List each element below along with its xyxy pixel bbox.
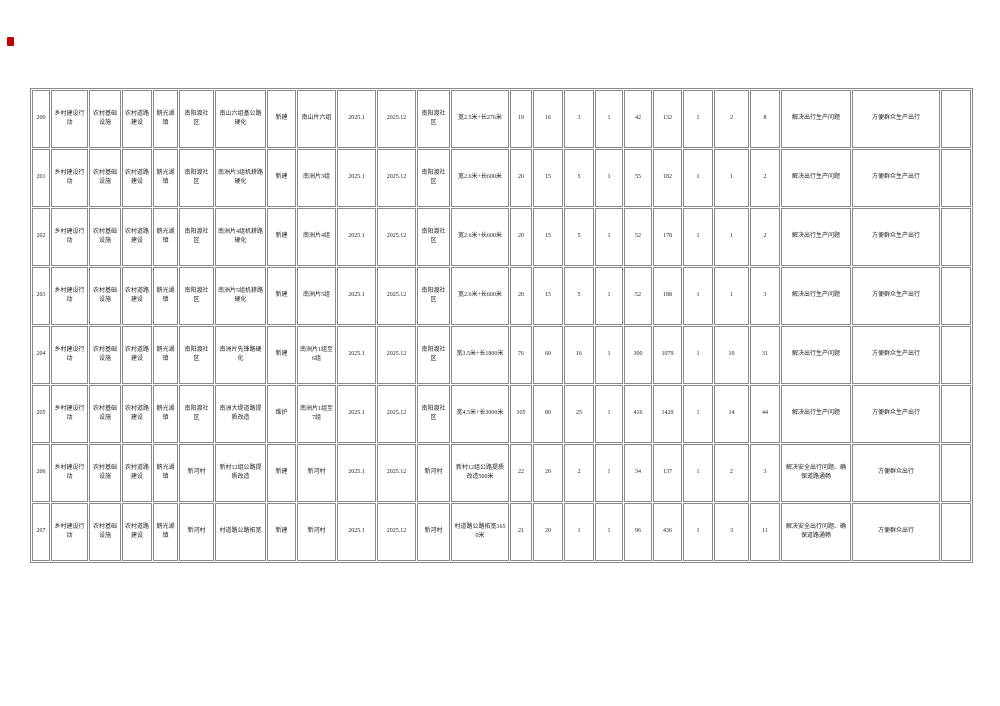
cell-scale: 新村12组公路提质改造500米 bbox=[451, 444, 509, 502]
cell-num-2: 15 bbox=[533, 267, 563, 325]
cell-action: 乡村建设行动 bbox=[51, 149, 88, 207]
cell-action: 乡村建设行动 bbox=[51, 444, 88, 502]
cell-purpose: 解决出行生产问题 bbox=[781, 208, 851, 266]
cell-unit: 南阳渡社区 bbox=[417, 149, 450, 207]
cell-end-date: 2025.12 bbox=[377, 444, 416, 502]
cell-num-3: 2 bbox=[564, 444, 594, 502]
cell-category: 农村基础设施 bbox=[89, 326, 121, 384]
cell-num-3: 3 bbox=[564, 90, 594, 148]
cell-unit: 南阳渡社区 bbox=[417, 208, 450, 266]
cell-blank bbox=[941, 444, 971, 502]
cell-end-date: 2025.12 bbox=[377, 208, 416, 266]
cell-num-9: 3 bbox=[750, 444, 780, 502]
cell-num-8: 1 bbox=[714, 208, 749, 266]
cell-unit: 南阳渡社区 bbox=[417, 385, 450, 443]
cell-index: 202 bbox=[32, 208, 50, 266]
cell-num-1: 20 bbox=[510, 267, 532, 325]
cell-purpose: 解决出行生产问题 bbox=[781, 90, 851, 148]
cell-effect: 方便群众生产出行 bbox=[852, 267, 940, 325]
cell-location: 新河村 bbox=[297, 444, 336, 502]
cell-num-5: 42 bbox=[624, 90, 652, 148]
cell-index: 206 bbox=[32, 444, 50, 502]
cell-num-1: 22 bbox=[510, 444, 532, 502]
cell-subcategory: 农村道路建设 bbox=[122, 208, 152, 266]
table-row: 203 乡村建设行动 农村基础设施 农村道路建设 鹅光湖镇 南阳渡社区 南洲片5… bbox=[32, 267, 971, 325]
cell-num-4: 1 bbox=[595, 326, 623, 384]
cell-purpose: 解决出行生产问题 bbox=[781, 326, 851, 384]
cell-num-3: 5 bbox=[564, 208, 594, 266]
cell-town: 鹅光湖镇 bbox=[153, 326, 178, 384]
cell-effect: 方便群众出行 bbox=[852, 444, 940, 502]
cell-start-date: 2025.1 bbox=[337, 208, 376, 266]
cell-project-name: 南洲片4组机耕路硬化 bbox=[215, 208, 266, 266]
cell-num-6: 132 bbox=[653, 90, 682, 148]
cell-index: 207 bbox=[32, 503, 50, 561]
cell-num-9: 11 bbox=[750, 503, 780, 561]
cell-num-6: 182 bbox=[653, 149, 682, 207]
cell-num-8: 1 bbox=[714, 267, 749, 325]
cell-town: 鹅光湖镇 bbox=[153, 385, 178, 443]
cell-num-2: 60 bbox=[533, 326, 563, 384]
cell-num-4: 1 bbox=[595, 149, 623, 207]
cell-subcategory: 农村道路建设 bbox=[122, 149, 152, 207]
cell-location: 南洲片3组 bbox=[297, 149, 336, 207]
cell-effect: 方便群众生产出行 bbox=[852, 326, 940, 384]
cell-num-5: 416 bbox=[624, 385, 652, 443]
table-row: 200 乡村建设行动 农村基础设施 农村道路建设 鹅光湖镇 南阳渡社区 南山六组… bbox=[32, 90, 971, 148]
cell-blank bbox=[941, 149, 971, 207]
cell-village: 南阳渡社区 bbox=[179, 267, 214, 325]
cell-num-4: 1 bbox=[595, 385, 623, 443]
table-row: 206 乡村建设行动 农村基础设施 农村道路建设 鹅光湖镇 新河村 新村12组公… bbox=[32, 444, 971, 502]
cell-num-6: 137 bbox=[653, 444, 682, 502]
cell-num-2: 16 bbox=[533, 90, 563, 148]
cell-num-5: 300 bbox=[624, 326, 652, 384]
cell-build-type: 新建 bbox=[267, 267, 296, 325]
cell-purpose: 解决出行生产问题 bbox=[781, 267, 851, 325]
cell-village: 南阳渡社区 bbox=[179, 385, 214, 443]
cell-blank bbox=[941, 208, 971, 266]
cell-build-type: 新建 bbox=[267, 149, 296, 207]
cell-num-1: 76 bbox=[510, 326, 532, 384]
cell-end-date: 2025.12 bbox=[377, 503, 416, 561]
cell-start-date: 2025.1 bbox=[337, 385, 376, 443]
cell-build-type: 新建 bbox=[267, 503, 296, 561]
cell-num-3: 5 bbox=[564, 149, 594, 207]
cell-index: 200 bbox=[32, 90, 50, 148]
cell-num-7: 1 bbox=[683, 90, 713, 148]
cell-project-name: 南山六组基公路硬化 bbox=[215, 90, 266, 148]
cell-num-8: 2 bbox=[714, 444, 749, 502]
cell-num-4: 1 bbox=[595, 267, 623, 325]
cell-num-1: 20 bbox=[510, 149, 532, 207]
cell-scale: 宽2.6米+长600米 bbox=[451, 208, 509, 266]
cell-num-7: 1 bbox=[683, 444, 713, 502]
cell-category: 农村基础设施 bbox=[89, 503, 121, 561]
cell-build-type: 新建 bbox=[267, 90, 296, 148]
cell-village: 新河村 bbox=[179, 503, 214, 561]
cell-start-date: 2025.1 bbox=[337, 503, 376, 561]
cell-project-name: 新村12组公路提质改造 bbox=[215, 444, 266, 502]
cell-action: 乡村建设行动 bbox=[51, 90, 88, 148]
cell-location: 新河村 bbox=[297, 503, 336, 561]
cell-location: 南洲片1组至7组 bbox=[297, 385, 336, 443]
cell-end-date: 2025.12 bbox=[377, 385, 416, 443]
cell-category: 农村基础设施 bbox=[89, 208, 121, 266]
cell-scale: 宽2.6米+长600米 bbox=[451, 267, 509, 325]
cell-town: 鹅光湖镇 bbox=[153, 503, 178, 561]
cell-end-date: 2025.12 bbox=[377, 149, 416, 207]
cell-num-9: 31 bbox=[750, 326, 780, 384]
cell-start-date: 2025.1 bbox=[337, 326, 376, 384]
cell-unit: 南阳渡社区 bbox=[417, 326, 450, 384]
cell-num-5: 96 bbox=[624, 503, 652, 561]
cell-location: 南山片六组 bbox=[297, 90, 336, 148]
cell-location: 南洲片4组 bbox=[297, 208, 336, 266]
project-table: 200 乡村建设行动 农村基础设施 农村道路建设 鹅光湖镇 南阳渡社区 南山六组… bbox=[30, 88, 973, 563]
cell-effect: 方便群众生产出行 bbox=[852, 149, 940, 207]
cell-town: 鹅光湖镇 bbox=[153, 149, 178, 207]
cell-num-1: 20 bbox=[510, 208, 532, 266]
cell-town: 鹅光湖镇 bbox=[153, 267, 178, 325]
cell-start-date: 2025.1 bbox=[337, 149, 376, 207]
cell-blank bbox=[941, 267, 971, 325]
cell-action: 乡村建设行动 bbox=[51, 385, 88, 443]
cell-purpose: 解决出行生产问题 bbox=[781, 149, 851, 207]
cell-num-3: 1 bbox=[564, 503, 594, 561]
cell-num-4: 1 bbox=[595, 90, 623, 148]
cell-subcategory: 农村道路建设 bbox=[122, 503, 152, 561]
cell-num-2: 80 bbox=[533, 385, 563, 443]
cell-end-date: 2025.12 bbox=[377, 90, 416, 148]
cell-town: 鹅光湖镇 bbox=[153, 444, 178, 502]
cell-build-type: 新建 bbox=[267, 326, 296, 384]
cell-build-type: 新建 bbox=[267, 444, 296, 502]
cell-index: 204 bbox=[32, 326, 50, 384]
cell-num-6: 436 bbox=[653, 503, 682, 561]
cell-num-2: 20 bbox=[533, 444, 563, 502]
cell-effect: 方便群众出行 bbox=[852, 503, 940, 561]
table-row: 204 乡村建设行动 农村基础设施 农村道路建设 鹅光湖镇 南阳渡社区 南洲片先… bbox=[32, 326, 971, 384]
cell-scale: 宽2.5米+长276米 bbox=[451, 90, 509, 148]
cell-project-name: 南洲片先锋路硬化 bbox=[215, 326, 266, 384]
cell-num-2: 15 bbox=[533, 149, 563, 207]
cell-num-5: 52 bbox=[624, 267, 652, 325]
cell-subcategory: 农村道路建设 bbox=[122, 444, 152, 502]
cell-subcategory: 农村道路建设 bbox=[122, 326, 152, 384]
cell-effect: 方便群众生产出行 bbox=[852, 208, 940, 266]
cell-num-6: 1079 bbox=[653, 326, 682, 384]
cell-effect: 方便群众生产出行 bbox=[852, 385, 940, 443]
cell-location: 南洲片1组至6组 bbox=[297, 326, 336, 384]
cell-unit: 南阳渡社区 bbox=[417, 90, 450, 148]
cell-subcategory: 农村道路建设 bbox=[122, 267, 152, 325]
cell-num-7: 1 bbox=[683, 503, 713, 561]
cell-num-7: 1 bbox=[683, 326, 713, 384]
cell-num-9: 2 bbox=[750, 208, 780, 266]
cell-scale: 村道路公路拓宽1650米 bbox=[451, 503, 509, 561]
annotation-mark-icon bbox=[7, 37, 14, 46]
cell-num-1: 105 bbox=[510, 385, 532, 443]
cell-num-5: 52 bbox=[624, 208, 652, 266]
cell-build-type: 新建 bbox=[267, 208, 296, 266]
cell-num-5: 34 bbox=[624, 444, 652, 502]
cell-num-6: 178 bbox=[653, 208, 682, 266]
cell-index: 201 bbox=[32, 149, 50, 207]
cell-subcategory: 农村道路建设 bbox=[122, 385, 152, 443]
cell-blank bbox=[941, 385, 971, 443]
cell-village: 新河村 bbox=[179, 444, 214, 502]
cell-index: 203 bbox=[32, 267, 50, 325]
cell-village: 南阳渡社区 bbox=[179, 208, 214, 266]
cell-village: 南阳渡社区 bbox=[179, 326, 214, 384]
cell-category: 农村基础设施 bbox=[89, 90, 121, 148]
cell-purpose: 解决安全出行问题、确保道路通畅 bbox=[781, 444, 851, 502]
cell-num-8: 1 bbox=[714, 149, 749, 207]
cell-action: 乡村建设行动 bbox=[51, 267, 88, 325]
cell-num-9: 8 bbox=[750, 90, 780, 148]
cell-num-7: 1 bbox=[683, 267, 713, 325]
cell-num-4: 1 bbox=[595, 503, 623, 561]
document-page: 200 乡村建设行动 农村基础设施 农村道路建设 鹅光湖镇 南阳渡社区 南山六组… bbox=[0, 0, 1000, 706]
cell-num-7: 1 bbox=[683, 208, 713, 266]
cell-unit: 南阳渡社区 bbox=[417, 267, 450, 325]
cell-start-date: 2025.1 bbox=[337, 444, 376, 502]
cell-unit: 新河村 bbox=[417, 503, 450, 561]
cell-scale: 宽2.6米+长600米 bbox=[451, 149, 509, 207]
cell-build-type: 维护 bbox=[267, 385, 296, 443]
cell-category: 农村基础设施 bbox=[89, 444, 121, 502]
cell-num-1: 21 bbox=[510, 503, 532, 561]
cell-num-8: 3 bbox=[714, 503, 749, 561]
cell-end-date: 2025.12 bbox=[377, 326, 416, 384]
cell-project-name: 南洲片5组机耕路硬化 bbox=[215, 267, 266, 325]
cell-num-6: 1420 bbox=[653, 385, 682, 443]
cell-subcategory: 农村道路建设 bbox=[122, 90, 152, 148]
table-body: 200 乡村建设行动 农村基础设施 农村道路建设 鹅光湖镇 南阳渡社区 南山六组… bbox=[32, 90, 971, 561]
cell-num-3: 25 bbox=[564, 385, 594, 443]
cell-num-1: 19 bbox=[510, 90, 532, 148]
cell-num-4: 1 bbox=[595, 444, 623, 502]
cell-start-date: 2025.1 bbox=[337, 267, 376, 325]
cell-project-name: 南洲大堤道路提质改造 bbox=[215, 385, 266, 443]
cell-blank bbox=[941, 503, 971, 561]
cell-num-7: 1 bbox=[683, 149, 713, 207]
cell-end-date: 2025.12 bbox=[377, 267, 416, 325]
cell-town: 鹅光湖镇 bbox=[153, 90, 178, 148]
cell-num-6: 188 bbox=[653, 267, 682, 325]
cell-index: 205 bbox=[32, 385, 50, 443]
cell-blank bbox=[941, 90, 971, 148]
cell-num-9: 2 bbox=[750, 149, 780, 207]
cell-action: 乡村建设行动 bbox=[51, 208, 88, 266]
table-row: 207 乡村建设行动 农村基础设施 农村道路建设 鹅光湖镇 新河村 村道路公路拓… bbox=[32, 503, 971, 561]
cell-scale: 宽4.5米+长3000米 bbox=[451, 385, 509, 443]
table-row: 201 乡村建设行动 农村基础设施 农村道路建设 鹅光湖镇 南阳渡社区 南洲片3… bbox=[32, 149, 971, 207]
cell-num-8: 14 bbox=[714, 385, 749, 443]
cell-village: 南阳渡社区 bbox=[179, 149, 214, 207]
cell-category: 农村基础设施 bbox=[89, 385, 121, 443]
cell-unit: 新河村 bbox=[417, 444, 450, 502]
cell-num-7: 1 bbox=[683, 385, 713, 443]
cell-action: 乡村建设行动 bbox=[51, 503, 88, 561]
cell-effect: 方便群众生产出行 bbox=[852, 90, 940, 148]
cell-num-3: 5 bbox=[564, 267, 594, 325]
cell-num-2: 15 bbox=[533, 208, 563, 266]
cell-project-name: 南洲片3组机耕路硬化 bbox=[215, 149, 266, 207]
cell-location: 南洲片5组 bbox=[297, 267, 336, 325]
cell-town: 鹅光湖镇 bbox=[153, 208, 178, 266]
table-row: 202 乡村建设行动 农村基础设施 农村道路建设 鹅光湖镇 南阳渡社区 南洲片4… bbox=[32, 208, 971, 266]
cell-num-8: 2 bbox=[714, 90, 749, 148]
cell-num-2: 20 bbox=[533, 503, 563, 561]
cell-num-8: 10 bbox=[714, 326, 749, 384]
cell-village: 南阳渡社区 bbox=[179, 90, 214, 148]
cell-start-date: 2025.1 bbox=[337, 90, 376, 148]
table-row: 205 乡村建设行动 农村基础设施 农村道路建设 鹅光湖镇 南阳渡社区 南洲大堤… bbox=[32, 385, 971, 443]
cell-num-3: 16 bbox=[564, 326, 594, 384]
cell-scale: 宽3.5米+长1800米 bbox=[451, 326, 509, 384]
cell-num-9: 44 bbox=[750, 385, 780, 443]
cell-action: 乡村建设行动 bbox=[51, 326, 88, 384]
cell-num-9: 3 bbox=[750, 267, 780, 325]
cell-purpose: 解决出行生产问题 bbox=[781, 385, 851, 443]
cell-blank bbox=[941, 326, 971, 384]
cell-category: 农村基础设施 bbox=[89, 267, 121, 325]
cell-num-5: 55 bbox=[624, 149, 652, 207]
cell-num-4: 1 bbox=[595, 208, 623, 266]
cell-project-name: 村道路公路拓宽 bbox=[215, 503, 266, 561]
cell-category: 农村基础设施 bbox=[89, 149, 121, 207]
cell-purpose: 解决安全出行问题、确保道路通畅 bbox=[781, 503, 851, 561]
